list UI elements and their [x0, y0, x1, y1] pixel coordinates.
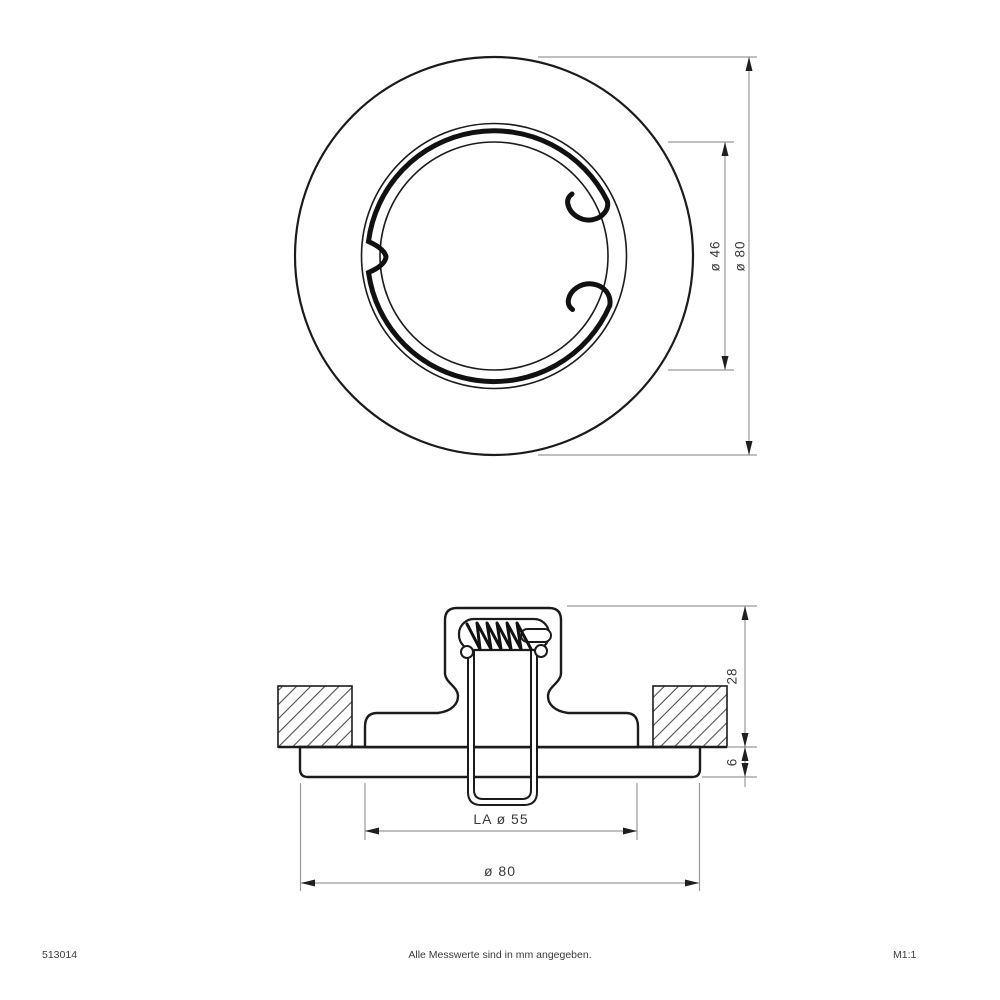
article-number: 513014	[42, 949, 77, 961]
drawing-page: ø 46 ø 80 28 6	[0, 0, 1000, 1000]
scale-label: M1:1	[893, 949, 917, 961]
side-view: 28 6 LA ø 55 ø 80	[278, 606, 757, 891]
footer: 513014 Alle Messwerte sind in mm angegeb…	[42, 949, 917, 961]
aperture-circle	[380, 142, 608, 370]
retaining-spring-ring	[369, 131, 611, 382]
top-view: ø 46 ø 80	[295, 57, 757, 455]
units-note: Alle Messwerte sind in mm angegeben.	[408, 949, 591, 961]
dim-label-cutout: LA ø 55	[473, 811, 528, 827]
ceiling-section-right	[653, 686, 727, 747]
ceiling-section-left	[278, 686, 352, 747]
trim-inner-edge-circle	[362, 124, 627, 389]
spring-anchor-lobe-left	[461, 646, 473, 658]
dim-label-height: 28	[725, 667, 740, 684]
outer-rim-circle	[295, 57, 693, 455]
spring-anchor-lobe-right	[535, 645, 547, 657]
trim-plate	[300, 747, 700, 777]
dim-label-inner-diameter: ø 46	[708, 240, 723, 271]
dim-label-outer-diameter-side: ø 80	[484, 863, 516, 879]
dim-label-plate-thickness: 6	[725, 758, 740, 767]
technical-drawing-canvas: ø 46 ø 80 28 6	[0, 0, 1000, 1000]
dim-label-outer-diameter: ø 80	[733, 240, 748, 271]
